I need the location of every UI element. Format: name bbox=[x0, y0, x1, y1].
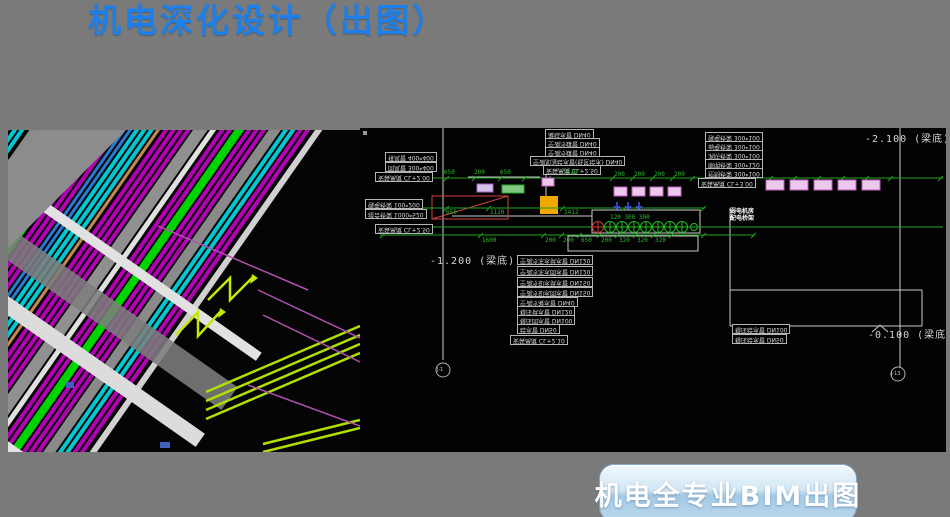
cad-dimension: 200 bbox=[614, 172, 625, 178]
cad-label-row: 稳压给水管 DN100 bbox=[732, 324, 790, 334]
pipe-clamp bbox=[160, 442, 170, 448]
cad-linework bbox=[360, 128, 946, 452]
valve-manifold bbox=[593, 222, 698, 233]
cad-drawing-panel: 排风管 400*400 回风管 300*400 安装高度 CL+2.00 强电桥… bbox=[360, 128, 946, 452]
cad-label-row: 排风管 400*400 bbox=[385, 152, 437, 162]
cad-dimension: 200 bbox=[601, 238, 612, 244]
cad-dimension: 650 bbox=[444, 170, 455, 176]
cad-dimension: 1600 bbox=[482, 238, 496, 244]
cad-dimension: 320 bbox=[619, 238, 630, 244]
cad-dimension: 200 bbox=[563, 238, 574, 244]
cad-dimension: 650 bbox=[446, 210, 457, 216]
grid-lines bbox=[363, 128, 922, 381]
cad-label-row: 给水管 DN50 bbox=[517, 324, 560, 334]
bim-3d-view bbox=[8, 130, 360, 452]
bim-output-badge-label: 机电全专业BIM出图 bbox=[595, 474, 862, 513]
cad-label-row: 安装高度 CL+2.10 bbox=[510, 335, 568, 345]
cad-dimension: 200 bbox=[474, 170, 485, 176]
cad-dimension: 200 bbox=[634, 172, 645, 178]
cad-elevation-label: -2.100 (梁底) bbox=[865, 134, 946, 145]
cad-label-row: 空调冷冻水回水管 DN120 bbox=[517, 266, 593, 276]
cad-label-row: 安装高度 CL+2.00 bbox=[375, 172, 433, 182]
cad-label-row: 控制桥架 300*100 bbox=[705, 168, 763, 178]
cad-label-row: 安装高度 CL+2.50 bbox=[375, 224, 433, 234]
cad-dimension: 650 bbox=[581, 238, 592, 244]
grid-bubble-label: J-1 bbox=[437, 368, 443, 373]
grid-bubble-label: J-13 bbox=[891, 372, 900, 377]
cad-dimension: 120 300 300 bbox=[610, 215, 650, 221]
cad-elevation-label: -1.200 (梁底) bbox=[430, 256, 515, 267]
cad-label-row: 回风管 300*400 bbox=[385, 162, 437, 172]
dimension-lines bbox=[380, 176, 943, 238]
cad-label-row: 稳压给水管 DN50 bbox=[732, 334, 787, 344]
cad-dimension: 200 bbox=[654, 172, 665, 178]
cad-label-row: 空调冷却水供水管 DN150 bbox=[517, 277, 593, 287]
room-note-line: 配电桥架 bbox=[730, 215, 754, 222]
flow-direction-marks bbox=[614, 202, 642, 209]
bim-3d-panel bbox=[8, 130, 360, 452]
cad-dimension: 1120 bbox=[490, 210, 504, 216]
bim-output-badge[interactable]: 机电全专业BIM出图 bbox=[600, 465, 856, 517]
equipment-boxes bbox=[477, 178, 880, 196]
cad-dimension: 320 bbox=[655, 238, 666, 244]
slide: 机电深化设计（出图） bbox=[0, 0, 950, 517]
cad-label-row: 组合桥架 1000*520 bbox=[365, 209, 427, 219]
cad-label-row: 强电桥架 100*200 bbox=[365, 199, 423, 209]
slide-title: 机电深化设计（出图） bbox=[88, 0, 448, 42]
cad-label-row: 空调冷却水回水管 DN150 bbox=[517, 287, 593, 297]
cad-dimension: 650 bbox=[500, 170, 511, 176]
room-note-line: 弱电机房 bbox=[730, 208, 754, 215]
cad-label-row: 空调冷冻水供水管 DN120 bbox=[517, 255, 593, 265]
cad-elevation-label: -0.100 (梁底) bbox=[868, 330, 946, 341]
cad-dimension: 320 bbox=[637, 238, 648, 244]
cad-dimension: 200 bbox=[674, 172, 685, 178]
cad-dimension: 1412 bbox=[564, 210, 578, 216]
cad-label-row: 安装高度 CL+3.00 bbox=[698, 178, 756, 188]
cad-dimension: 1420 bbox=[563, 170, 577, 176]
cad-dimension: 200 bbox=[545, 238, 556, 244]
pipe-clamp bbox=[66, 382, 74, 388]
equipment-highlight bbox=[540, 196, 558, 214]
